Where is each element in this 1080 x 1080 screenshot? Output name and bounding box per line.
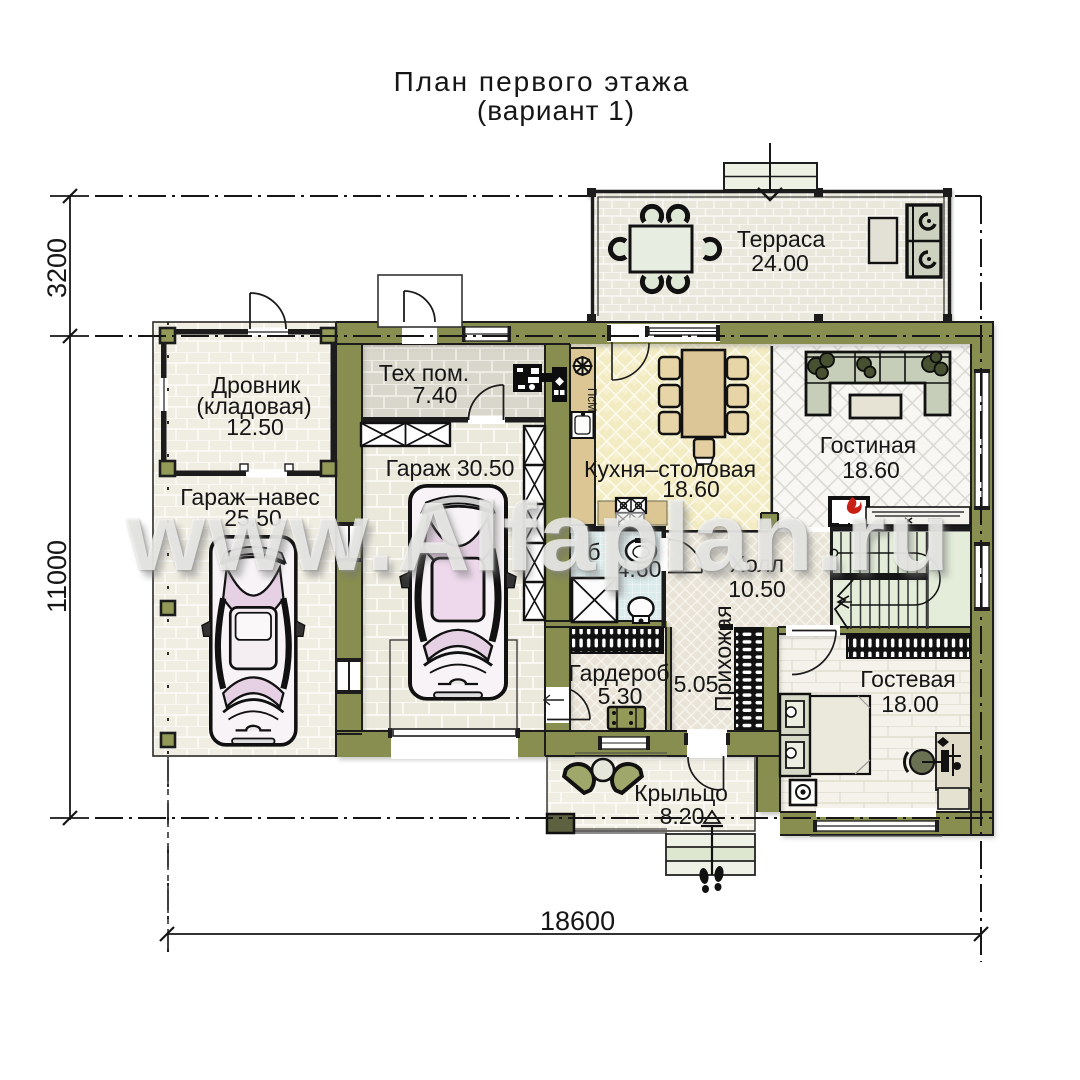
- svg-text:ПсМ: ПсМ: [585, 388, 597, 412]
- svg-text:Гостевая: Гостевая: [860, 666, 955, 692]
- svg-text:18.60: 18.60: [842, 457, 900, 483]
- svg-text:5.30: 5.30: [598, 683, 643, 709]
- svg-text:Прихожая: Прихожая: [710, 605, 736, 712]
- svg-text:11000: 11000: [42, 540, 72, 613]
- svg-text:12.50: 12.50: [226, 414, 284, 440]
- svg-text:План первого этажа: План первого этажа: [394, 66, 691, 97]
- svg-text:Гараж 30.50: Гараж 30.50: [386, 455, 515, 481]
- svg-text:24.00: 24.00: [751, 250, 809, 276]
- svg-text:Гостиная: Гостиная: [820, 432, 917, 458]
- svg-text:18600: 18600: [540, 906, 615, 936]
- svg-text:Терраса: Терраса: [737, 226, 825, 252]
- svg-text:3200: 3200: [42, 238, 72, 298]
- svg-text:8.20: 8.20: [660, 803, 705, 829]
- svg-text:7.40: 7.40: [413, 382, 458, 408]
- svg-text:(вариант 1): (вариант 1): [477, 95, 635, 126]
- svg-text:18.00: 18.00: [881, 691, 939, 717]
